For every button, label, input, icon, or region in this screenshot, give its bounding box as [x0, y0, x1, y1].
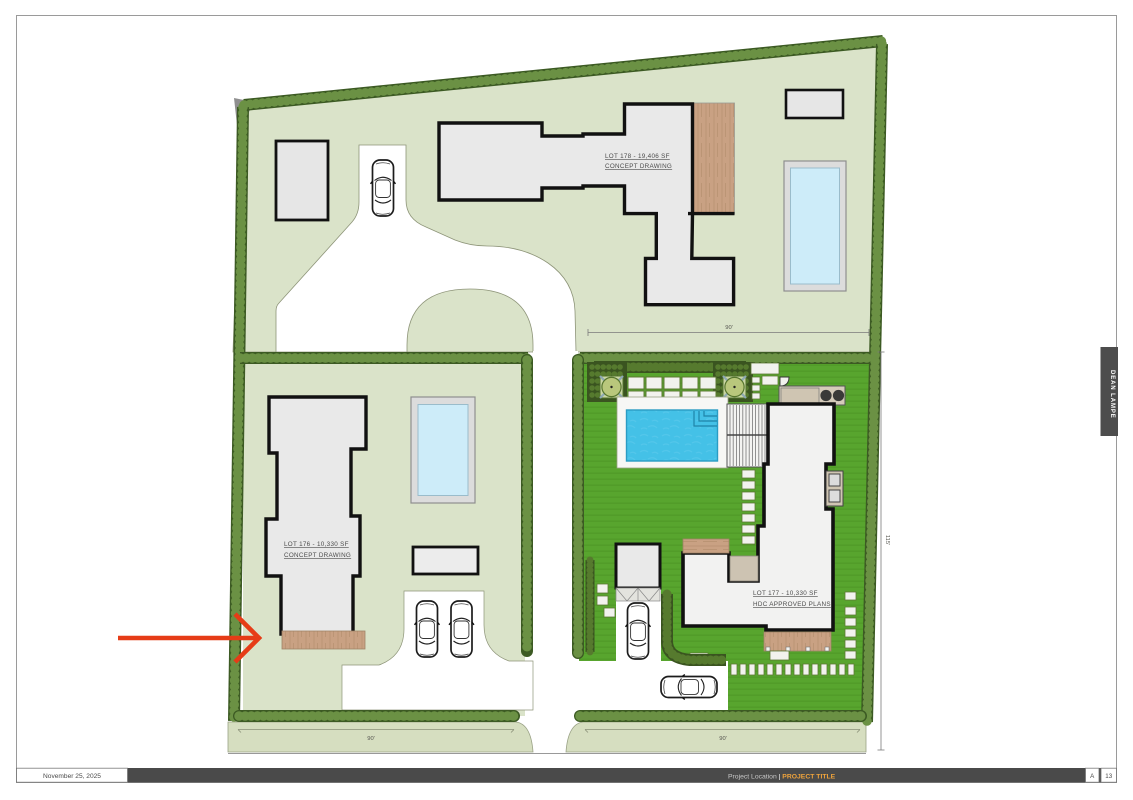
svg-text:90': 90' — [719, 736, 727, 742]
svg-text:CONCEPT DRAWING: CONCEPT DRAWING — [284, 552, 351, 559]
svg-text:CONCEPT DRAWING: CONCEPT DRAWING — [605, 163, 672, 170]
svg-text:LOT 176 - 10,330 SF: LOT 176 - 10,330 SF — [284, 541, 349, 548]
svg-text:DEAN LAMPE: DEAN LAMPE — [1109, 370, 1115, 419]
svg-text:November 25, 2025: November 25, 2025 — [43, 773, 101, 780]
svg-text:Project Location | PROJECT TIT: Project Location | PROJECT TITLE — [728, 773, 836, 780]
svg-text:LOT 178 - 19,406 SF: LOT 178 - 19,406 SF — [605, 153, 670, 160]
svg-text:90': 90' — [367, 736, 375, 742]
svg-text:90': 90' — [725, 325, 733, 331]
svg-text:13: 13 — [1105, 773, 1112, 780]
svg-text:115': 115' — [884, 535, 890, 545]
svg-text:HDC APPROVED PLANS: HDC APPROVED PLANS — [753, 601, 831, 608]
svg-text:LOT 177 - 10,330 SF: LOT 177 - 10,330 SF — [753, 590, 818, 597]
